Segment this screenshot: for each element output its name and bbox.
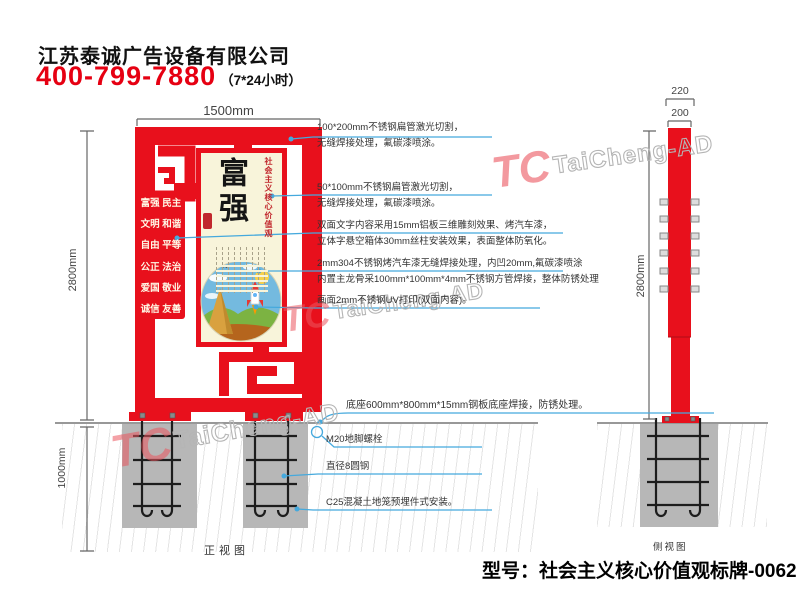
service-hours: （7*24小时） [220,73,302,88]
core-values-panel: 富强 民主 文明 和谐 自由 平等 公正 法治 爱国 敬业 诚信 友善 [137,191,185,319]
poster-body-text [216,247,268,293]
annotation-line: 直径8圆钢 [326,461,369,473]
front-view-label: 正视图 [204,542,249,558]
annotation-line: C25混凝土地笼预埋件式安装。 [326,497,457,509]
watermark-text: TaiCheng-AD [552,130,715,179]
annotation-rebar: 直径8圆钢 [326,461,369,473]
side-view-label: 侧视图 [653,539,688,553]
annotation-line: 立体字悬空箱体30mm丝柱安装效果，表面整体防氧化。 [317,236,552,248]
annotation-cabinet: 2mm304不锈钢烤汽车漆无缝焊接处理，内凹20mm,氟碳漆喷涂 内置主龙骨采1… [317,258,599,286]
annotation-line: 画面2mm不锈钢UV打印(双面内容)。 [317,295,472,307]
core-values-row: 爱国 敬业 [137,280,185,294]
annotation-3d-letters: 双面文字内容采用15mm铝板三维雕刻效果、烤汽车漆， 立体字悬空箱体30mm丝柱… [317,220,552,248]
annotation-line: 内置主龙骨采100mm*100mm*4mm不锈钢方管焊接，整体防锈处理 [317,274,599,286]
annotation-line: 底座600mm*800mm*15mm钢板底座焊接，防锈处理。 [346,400,588,412]
poster-seal [203,213,212,229]
core-values-row: 文明 和谐 [137,216,185,230]
core-values-row: 诚信 友善 [137,301,185,315]
annotation-line: 双面文字内容采用15mm铝板三维雕刻效果、烤汽车漆， [317,220,552,232]
annotation-anchor-bolt: M20地脚螺栓 [326,434,382,446]
core-values-row: 公正 法治 [137,259,185,273]
watermark-bottom-left: TC TaiCheng-AD [107,386,344,477]
model-number: 型号：社会主义核心价值观标牌-0062 [482,556,797,583]
annotation-base-plate: 底座600mm*800mm*15mm钢板底座焊接，防锈处理。 [346,400,588,412]
core-values-row: 自由 平等 [137,237,185,251]
taicheng-logo-icon: TC [489,141,555,198]
annotation-line: M20地脚螺栓 [326,434,382,446]
phone-number: 400-799-7880 [36,61,216,91]
dim-height-side: 2800mm [635,238,647,314]
taicheng-logo-icon: TC [107,416,177,478]
watermark-text: TaiCheng-AD [172,398,342,455]
dim-depth-front: 1000mm [56,430,68,506]
annotation-line: 2mm304不锈钢烤汽车漆无缝焊接处理，内凹20mm,氟碳漆喷涂 [317,258,599,270]
dim-outer-side: 220 [666,85,694,97]
annotation-line: 100*200mm不锈钢扁管激光切割， [317,122,463,134]
phone-row: 400-799-7880（7*24小时） [36,61,302,92]
watermark-top-right: TC TaiCheng-AD [489,118,717,198]
annotation-uv-print: 画面2mm不锈钢UV打印(双面内容)。 [317,295,472,307]
dim-inner-side: 200 [668,107,692,119]
core-values-row: 富强 民主 [137,195,185,209]
spec-sheet: TC TaiCheng-AD TC TaiCheng-AD TC TaiChen… [0,0,800,600]
annotation-pipe-100x200: 100*200mm不锈钢扁管激光切割， 无缝焊接处理，氟碳漆喷涂。 [317,122,463,150]
annotation-line: 50*100mm不锈钢扁管激光切割， [317,182,458,194]
dim-width-front: 1500mm [135,103,322,118]
poster-headline: 富强 [208,157,252,241]
annotation-line: 无缝焊接处理，氟碳漆喷涂。 [317,138,463,150]
annotation-line: 无缝焊接处理，氟碳漆喷涂。 [317,198,458,210]
poster-side-label: 社会主义核心价值观 [263,157,274,243]
dim-height-front: 2800mm [67,232,79,308]
annotation-pipe-50x100: 50*100mm不锈钢扁管激光切割， 无缝焊接处理，氟碳漆喷涂。 [317,182,458,210]
annotation-concrete: C25混凝土地笼预埋件式安装。 [326,497,457,509]
